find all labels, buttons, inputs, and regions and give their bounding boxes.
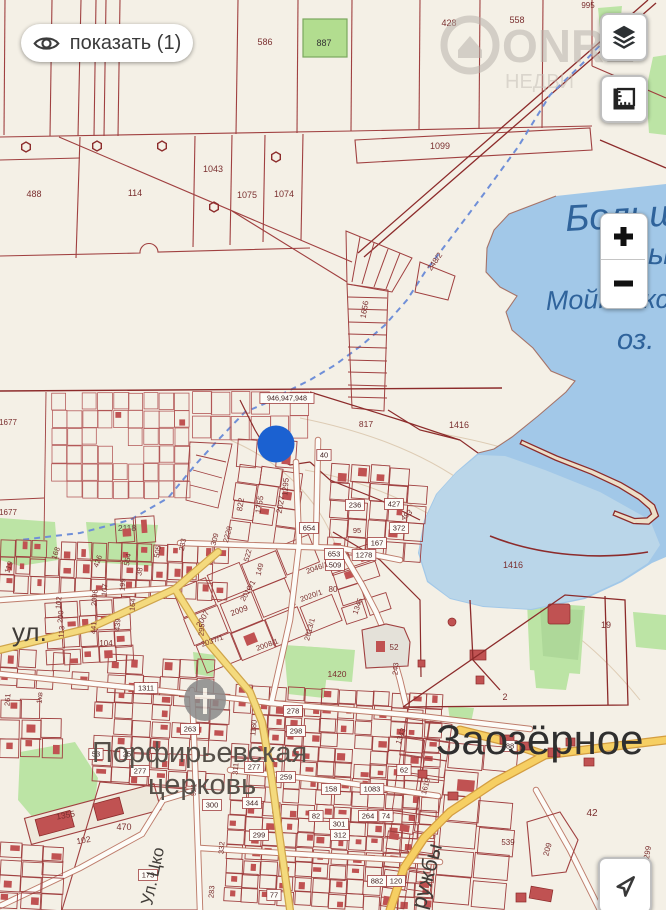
svg-text:332: 332 [216, 841, 226, 854]
svg-text:243: 243 [390, 662, 400, 675]
svg-text:263: 263 [184, 725, 197, 734]
svg-text:80: 80 [329, 585, 338, 594]
svg-text:120: 120 [390, 877, 403, 886]
svg-text:488: 488 [26, 189, 41, 199]
svg-text:52: 52 [390, 643, 399, 652]
svg-text:470: 470 [116, 822, 131, 832]
svg-text:1075: 1075 [237, 190, 257, 200]
svg-text:278: 278 [287, 707, 300, 716]
svg-text:298: 298 [290, 727, 303, 736]
svg-text:82: 82 [312, 812, 320, 821]
svg-text:1420: 1420 [328, 669, 347, 679]
svg-text:19: 19 [601, 620, 611, 630]
svg-text:38: 38 [134, 567, 144, 577]
svg-text:1кв: 1кв [35, 692, 45, 704]
svg-text:107: 107 [99, 583, 109, 596]
svg-text:оз.: оз. [617, 324, 654, 356]
svg-text:164: 164 [127, 598, 137, 611]
svg-text:1295: 1295 [280, 477, 291, 496]
svg-text:ы: ы [648, 238, 666, 271]
svg-text:299: 299 [253, 831, 266, 840]
svg-text:2096: 2096 [89, 589, 99, 606]
svg-text:654: 654 [303, 524, 316, 533]
svg-text:1416: 1416 [449, 420, 469, 430]
svg-text:1278: 1278 [356, 551, 373, 560]
svg-text:439: 439 [112, 618, 122, 631]
svg-text:295: 295 [196, 623, 206, 636]
svg-text:264: 264 [362, 812, 375, 821]
svg-text:441: 441 [88, 621, 98, 634]
svg-text:74: 74 [382, 812, 390, 821]
svg-text:817: 817 [359, 419, 373, 429]
svg-text:2: 2 [502, 692, 507, 702]
svg-text:372: 372 [393, 524, 406, 533]
svg-text:114: 114 [128, 188, 142, 198]
svg-text:1677: 1677 [0, 508, 17, 517]
svg-text:1677: 1677 [0, 418, 17, 427]
svg-text:653: 653 [328, 550, 341, 559]
svg-text:236: 236 [349, 501, 362, 510]
svg-text:104: 104 [99, 639, 113, 648]
svg-text:586: 586 [257, 37, 272, 47]
svg-text:НЕДВИ: НЕДВИ [505, 71, 574, 93]
svg-text:946,947,948: 946,947,948 [267, 394, 307, 403]
svg-text:300: 300 [206, 801, 219, 810]
svg-text:312: 312 [334, 831, 347, 840]
svg-text:Порфирьевская: Порфирьевская [92, 737, 307, 769]
svg-text:1311: 1311 [138, 684, 154, 693]
svg-text:261: 261 [2, 693, 12, 706]
svg-text:95: 95 [353, 526, 361, 535]
svg-text:ул.: ул. [12, 617, 47, 647]
svg-text:427: 427 [388, 500, 401, 509]
svg-text:167: 167 [371, 539, 384, 548]
svg-text:1180: 1180 [248, 719, 258, 736]
svg-text:200: 200 [55, 610, 65, 623]
svg-text:77: 77 [270, 891, 278, 900]
svg-text:301: 301 [333, 820, 346, 829]
svg-text:539: 539 [501, 838, 515, 847]
svg-text:церковь: церковь [148, 769, 256, 801]
svg-text:102: 102 [53, 596, 63, 609]
svg-text:887: 887 [316, 38, 331, 48]
svg-text:199: 199 [117, 578, 127, 591]
svg-text:1083: 1083 [364, 785, 381, 794]
svg-text:1416: 1416 [503, 560, 523, 570]
svg-text:62: 62 [400, 766, 408, 775]
svg-text:113: 113 [57, 625, 67, 638]
svg-text:1074: 1074 [274, 189, 294, 199]
svg-text:42: 42 [586, 808, 598, 819]
svg-text:1043: 1043 [203, 164, 223, 174]
svg-text:158: 158 [325, 785, 338, 794]
svg-text:1099: 1099 [430, 141, 450, 151]
svg-text:995: 995 [581, 1, 595, 10]
svg-text:509: 509 [329, 561, 342, 570]
svg-text:40: 40 [320, 451, 328, 460]
svg-text:Заозёрное: Заозёрное [436, 716, 644, 763]
svg-text:259: 259 [280, 773, 293, 782]
svg-text:283: 283 [206, 885, 216, 898]
svg-text:882: 882 [371, 877, 384, 886]
